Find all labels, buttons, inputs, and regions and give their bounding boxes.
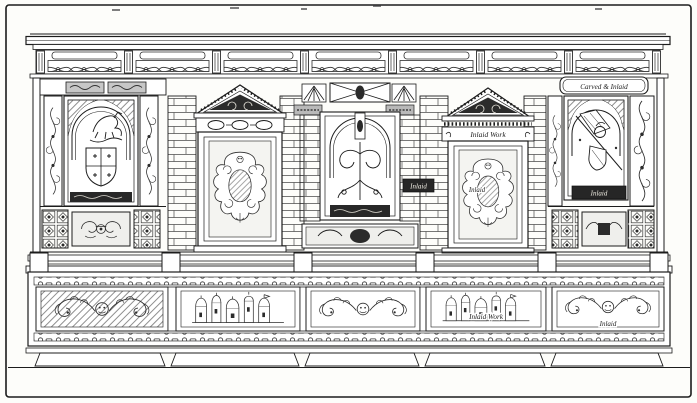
drawer-divider [546,287,552,331]
drawer-townscape-right: Inlaid Work [426,287,546,331]
drawer-grotesque-left [36,287,168,331]
drawer-label: Inlaid [599,320,617,328]
fretwork-panel [552,210,578,248]
drawer-row: Inlaid Work Inlaid [28,272,670,346]
drawer-divider [300,287,306,331]
jamb-label-block: Inlaid [403,179,434,192]
strapwork-door: Inlaid [448,141,528,248]
drawer-divider [168,287,176,331]
foot-blocks [35,353,663,366]
jamb-label: Inlaid [409,183,427,191]
carved-inlaid-cartouche: Carved & Inlaid [560,77,648,94]
rusticated-pier [300,115,320,221]
niche-base-band [330,205,390,217]
left-door-bay [168,85,304,252]
drawer-scroll-right: Inlaid [552,287,664,331]
cornice [26,34,670,50]
rusticated-pier [400,115,420,221]
niche-plinth-label: Inlaid [572,186,626,199]
center-lower-panel [302,224,418,248]
frieze-label: Inlaid Work [469,130,506,139]
fretwork-panel [134,210,160,248]
fretwork-panel [628,210,654,248]
armorial-shield [86,148,116,186]
guilloche-frieze [30,50,668,78]
drawer-townscape-left [176,287,300,331]
engraved-plate: Inlaid Inlaid Work Inlaid [0,0,697,403]
right-door-bay: Inlaid Inlaid Work Inlaid [403,88,546,253]
trophy-niche: Inlaid [564,96,628,200]
fretwork-panel [42,210,68,248]
door-cartouche-label: Inlaid [468,187,486,194]
right-end-bay: Carved & Inlaid [548,77,654,248]
center-arched-niche [320,112,400,220]
left-end-bay [40,79,166,248]
bead-border [34,333,664,341]
left-lower-row [40,207,166,249]
sideboard-engraving: Inlaid Inlaid Work Inlaid [0,0,697,403]
bay-cartouche-label: Carved & Inlaid [580,83,628,91]
paterae-frieze [196,118,284,132]
niche-label: Inlaid [590,190,608,198]
right-lower-row [548,207,654,249]
plinth [8,346,690,368]
heraldic-niche [64,96,138,206]
strap-tablet [330,83,390,102]
drawer-divider [420,287,426,331]
door-sill [194,246,286,252]
inlaid-work-frieze: Inlaid Work [442,127,534,141]
bead-border [34,277,664,285]
strapwork-door [198,132,282,246]
drawer-grotesque-center [306,287,420,331]
niche-base-band [70,192,132,202]
rusticated-pier [168,96,196,250]
drawer-label: Inlaid Work [468,313,504,321]
